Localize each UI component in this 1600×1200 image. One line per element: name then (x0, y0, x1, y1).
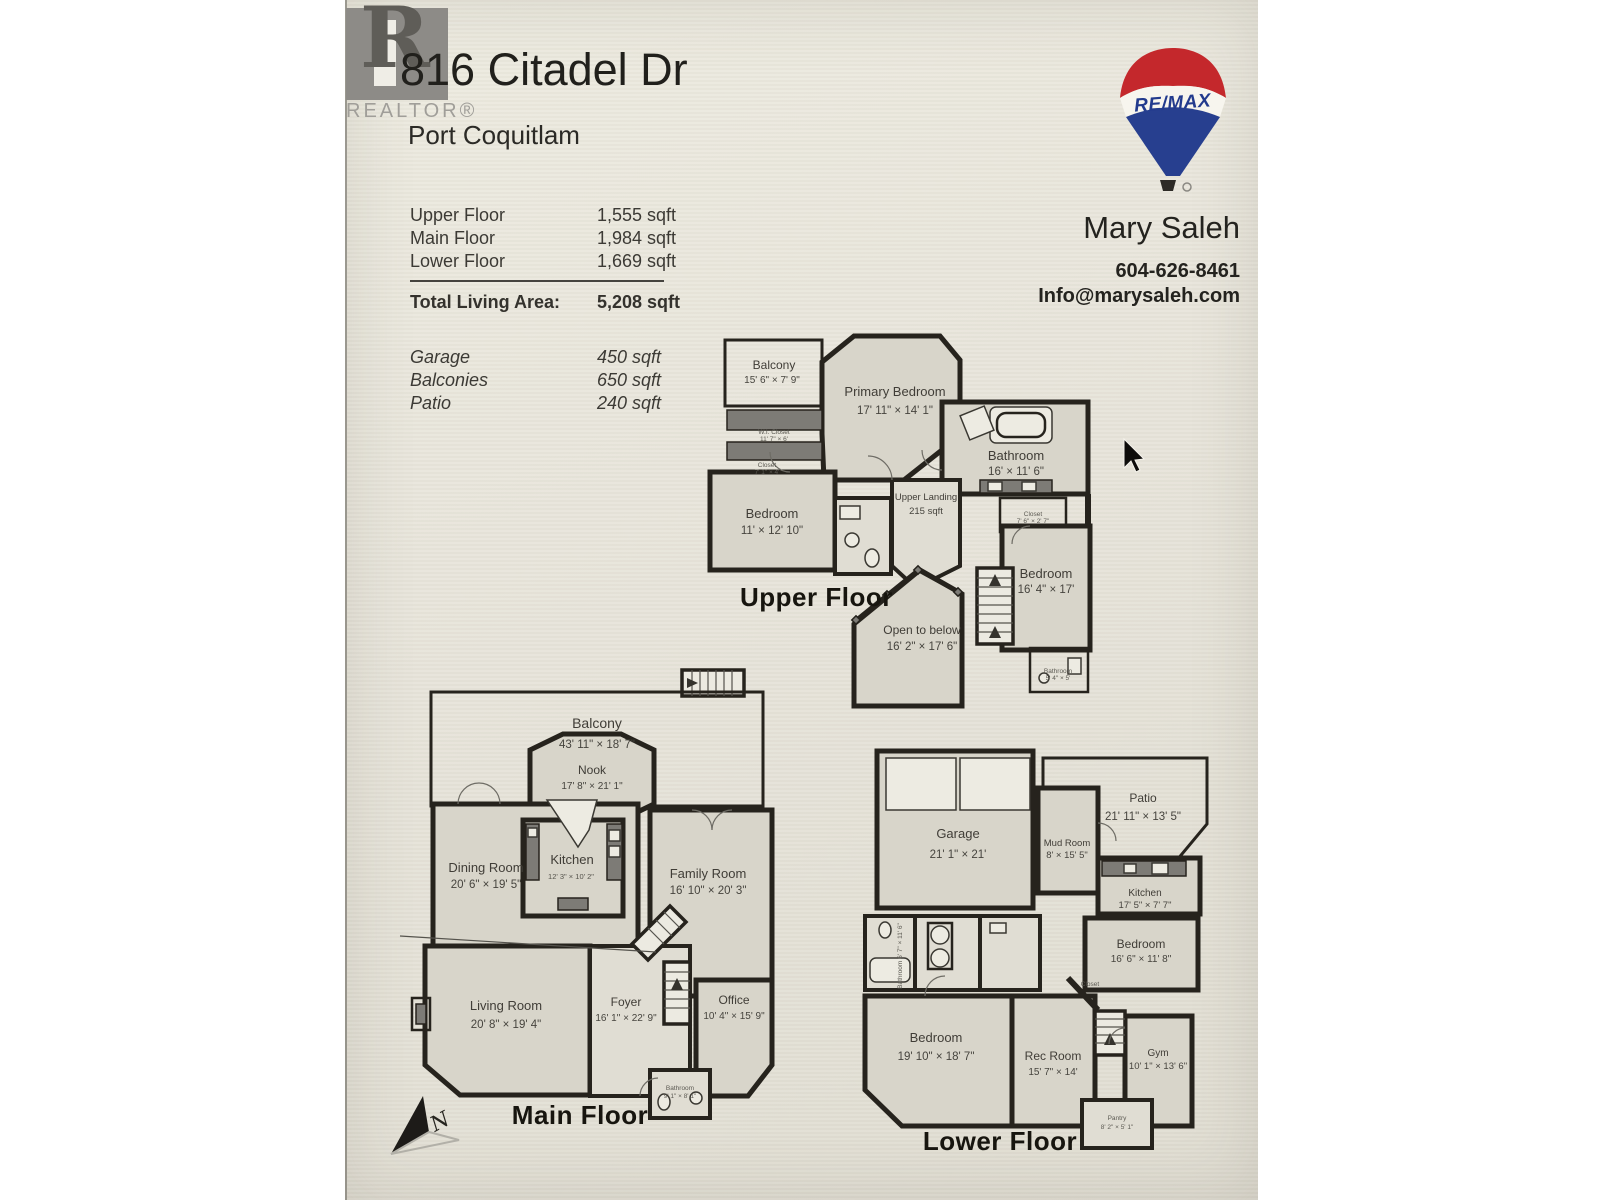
room-label-foyer: Foyer (611, 995, 642, 1009)
stat-label: Balconies (410, 370, 597, 391)
room-label-balcony: Balcony (753, 358, 796, 372)
stat-label: Patio (410, 393, 597, 414)
upper-staircase (977, 568, 1013, 644)
room-dims-upper-landing: 215 sqft (909, 506, 943, 517)
room-label-family: Family Room (670, 866, 747, 881)
scanned-listing-page: R REALTOR® 816 Citadel Dr Port Coquitlam… (0, 0, 1600, 1200)
room-label-wi-closet: W.I. Closet (758, 429, 790, 436)
room-label-office: Office (718, 993, 749, 1007)
stat-value: 650 sqft (597, 370, 661, 391)
room-label-bathroom-small: Bathroom (1044, 668, 1072, 675)
room-dims-bedroom-big: 19' 10" × 18' 7" (898, 1051, 975, 1063)
stat-row: Upper Floor 1,555 sqft (410, 204, 690, 227)
floor-title-lower: Lower Floor (923, 1126, 1077, 1156)
stat-value: 240 sqft (597, 393, 661, 414)
room-label-closet-a: Closet (758, 462, 777, 469)
room-dims-kitchen: 12' 3" × 10' 2" (548, 872, 594, 881)
stat-value: 1,669 sqft (597, 251, 676, 272)
stat-label: Upper Floor (410, 205, 597, 226)
mouse-cursor-icon (1122, 438, 1146, 474)
room-label-bedroom-right: Bedroom (1020, 566, 1073, 581)
area-statistics: Upper Floor 1,555 sqft Main Floor 1,984 … (410, 204, 690, 415)
north-arrow-icon: N (383, 1090, 463, 1165)
stat-row: Garage 450 sqft (410, 346, 690, 369)
room-dims-mud-room: 8' × 15' 5" (1046, 850, 1088, 861)
stat-row: Main Floor 1,984 sqft (410, 227, 690, 250)
room-label-balcony: Balcony (572, 715, 622, 731)
room-dims-family: 16' 10" × 20' 3" (670, 885, 747, 897)
stat-row: Lower Floor 1,669 sqft (410, 250, 690, 273)
room-label-primary-bedroom: Primary Bedroom (844, 384, 945, 399)
room-dims-foyer: 16' 1" × 22' 9" (595, 1013, 657, 1024)
room-label-kitchen: Kitchen (550, 852, 593, 867)
room-label-closet: Closet (1081, 981, 1100, 988)
room-label-bedroom-big: Bedroom (910, 1030, 963, 1045)
stat-value: 1,555 sqft (597, 205, 676, 226)
room-dims-bathroom: 16' × 11' 6" (988, 466, 1044, 478)
stat-label: Garage (410, 347, 597, 368)
total-living-area-row: Total Living Area: 5,208 sqft (410, 291, 690, 314)
stat-row: Balconies 650 sqft (410, 369, 690, 392)
total-value: 5,208 sqft (597, 292, 680, 313)
room-dims-bedroom-right: 16' 4" × 17' (1018, 584, 1075, 596)
room-dims-primary-bedroom: 17' 11" × 14' 1" (857, 405, 933, 417)
balloon-basket (1160, 180, 1176, 191)
total-label: Total Living Area: (410, 292, 597, 313)
room-dims-bedroom-left: 11' × 12' 10" (741, 525, 803, 537)
room-dims-bedroom-right: 16' 6" × 11' 8" (1111, 954, 1172, 965)
agent-email: Info@marysaleh.com (1000, 285, 1240, 308)
page-title-address: 816 Citadel Dr (400, 44, 688, 96)
room-dims-pantry: 8' 2" × 5' 1" (1101, 1124, 1134, 1131)
room-label-rec-room: Rec Room (1025, 1049, 1082, 1063)
room-label-closet-b: Closet (1024, 511, 1043, 518)
remax-balloon-icon: RE/MAX (1108, 40, 1238, 198)
extra-areas: Garage 450 sqft Balconies 650 sqft Patio… (410, 346, 690, 415)
room-dims-dining: 20' 6" × 19' 5" (451, 879, 521, 891)
stat-value: 1,984 sqft (597, 228, 676, 249)
room-label-bathroom: Bathroom (988, 448, 1044, 463)
floor-title-main: Main Floor (512, 1100, 648, 1130)
room-dims-closet-a: 7' 1" × 4' (755, 469, 780, 476)
room-label-kitchen: Kitchen (1128, 888, 1161, 899)
room-dims-bathroom-small: 5' 4" × 5' (1046, 675, 1071, 682)
room-label-nook: Nook (578, 763, 607, 777)
floor-title-upper: Upper Floor (740, 582, 893, 612)
room-dims-garage: 21' 1" × 21' (930, 849, 987, 861)
room-dims-balcony: 43' 11" × 18' 7" (559, 739, 635, 751)
stats-divider (410, 280, 664, 282)
room-dims-gym: 10' 1" × 13' 6" (1129, 1061, 1187, 1072)
stat-value: 450 sqft (597, 347, 661, 368)
room-label-gym: Gym (1147, 1048, 1168, 1059)
room-label-living: Living Room (470, 998, 542, 1013)
room-dims-wi-closet: 11' 7" × 6' (760, 436, 788, 443)
room-dims-rec-room: 15' 7" × 14' (1028, 1067, 1077, 1078)
agent-contact-block: Mary Saleh 604-626-8461 Info@marysaleh.c… (1000, 210, 1240, 308)
stat-label: Lower Floor (410, 251, 597, 272)
room-dims-balcony: 15' 6" × 7' 9" (744, 375, 800, 386)
room-label-open-to-below: Open to below (883, 623, 961, 637)
lower-floor-plan: Garage 21' 1" × 21' Patio 21' 11" × 13' … (840, 728, 1220, 1178)
room-label-patio: Patio (1129, 791, 1157, 805)
room-dims-open-to-below: 16' 2" × 17' 6" (887, 641, 957, 653)
room-label-bedroom-left: Bedroom (746, 506, 799, 521)
page-subtitle-city: Port Coquitlam (408, 120, 580, 151)
room-dims-bathroom: 9' 1" × 8' 1" (664, 1093, 697, 1100)
stat-row: Patio 240 sqft (410, 392, 690, 415)
room-label-garage: Garage (936, 826, 979, 841)
room-dims-closet-b: 7' 6" × 2' 7" (1017, 518, 1050, 525)
lower-staircase (1095, 1011, 1125, 1055)
main-floor-plan: Balcony 43' 11" × 18' 7" Nook 17' 8" × 2… (400, 650, 780, 1150)
room-dims-office: 10' 4" × 15' 9" (703, 1011, 765, 1022)
stat-label: Main Floor (410, 228, 597, 249)
upper-floor-plan: Balcony 15' 6" × 7' 9" Primary Bedroom 1… (700, 330, 1100, 700)
room-dims-nook: 17' 8" × 21' 1" (561, 781, 623, 792)
agent-phone: 604-626-8461 (1000, 260, 1240, 283)
room-label-mud-room: Mud Room (1044, 838, 1091, 849)
room-dims-living: 20' 8" × 19' 4" (471, 1019, 541, 1031)
room-label-dining: Dining Room (448, 860, 523, 875)
room-label-bedroom-right: Bedroom (1117, 937, 1166, 951)
room-dims-patio: 21' 11" × 13' 5" (1105, 811, 1181, 823)
agent-name: Mary Saleh (1000, 210, 1240, 246)
room-label-pantry: Pantry (1108, 1115, 1128, 1122)
room-label-bathroom: Bathroom 6' 7" × 11' 6" (897, 922, 904, 988)
room-label-bathroom: Bathroom (666, 1085, 694, 1092)
room-label-upper-landing: Upper Landing (895, 492, 957, 503)
room-dims-kitchen: 17' 5" × 7' 7" (1119, 900, 1172, 911)
